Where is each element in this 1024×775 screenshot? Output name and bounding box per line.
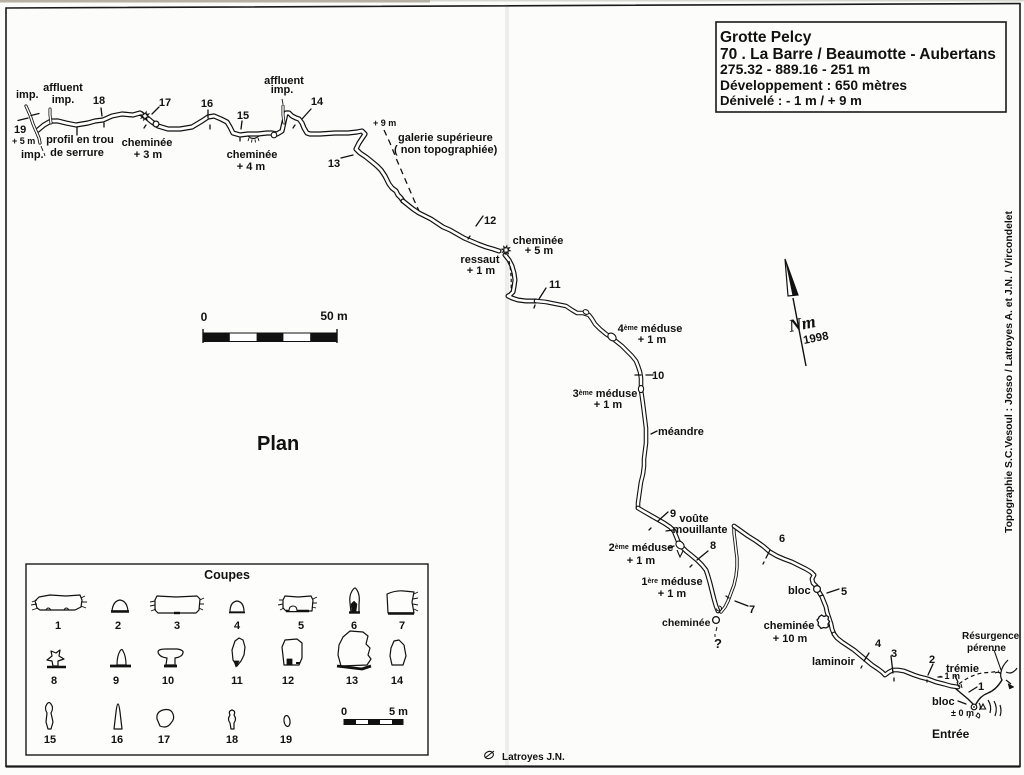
svg-text:cheminée: cheminée (122, 137, 173, 149)
svg-text:14: 14 (391, 675, 404, 687)
svg-text:4: 4 (234, 620, 241, 632)
svg-text:cheminée: cheminée (227, 149, 278, 161)
svg-text:19: 19 (14, 124, 26, 136)
svg-text:12: 12 (484, 215, 496, 227)
svg-text:Entrée: Entrée (932, 727, 970, 741)
svg-text:13: 13 (328, 158, 340, 170)
svg-text:18: 18 (226, 734, 238, 746)
svg-text:+ 1 m: + 1 m (638, 334, 667, 346)
svg-text:17: 17 (158, 734, 170, 746)
svg-text:+ 10 m: + 10 m (773, 633, 808, 645)
svg-text:bloc: bloc (788, 585, 811, 597)
svg-text:3: 3 (891, 648, 897, 660)
svg-text:1: 1 (55, 620, 61, 632)
svg-text:cheminée: cheminée (662, 617, 711, 629)
svg-text:Grotte Pelcy: Grotte Pelcy (720, 29, 812, 46)
svg-text:Latroyes J.N.: Latroyes J.N. (502, 752, 565, 763)
svg-text:2: 2 (929, 654, 935, 666)
svg-text:Développement : 650 mètres: Développement : 650 mètres (720, 78, 907, 93)
svg-text:imp.: imp. (52, 94, 75, 106)
svg-text:Dénivelé : - 1 m / + 9 m: Dénivelé : - 1 m / + 9 m (720, 93, 862, 108)
svg-text:18: 18 (93, 95, 105, 107)
svg-text:+ 9 m: + 9 m (373, 118, 396, 128)
svg-text:275.32 - 889.16 - 251 m: 275.32 - 889.16 - 251 m (720, 61, 870, 77)
svg-text:7: 7 (749, 604, 755, 616)
svg-text:10: 10 (652, 370, 664, 382)
svg-text:imp.: imp. (21, 149, 44, 161)
svg-text:+ 1 m: + 1 m (658, 588, 687, 600)
svg-text:0: 0 (201, 310, 208, 324)
svg-text:+ 1 m: + 1 m (594, 399, 623, 411)
svg-text:mouillante: mouillante (672, 524, 727, 536)
svg-text:5: 5 (298, 620, 304, 632)
svg-text:imp.: imp. (16, 89, 39, 101)
svg-text:Résurgence: Résurgence (962, 631, 1020, 642)
svg-text:+ 5 m: + 5 m (525, 245, 554, 257)
svg-text:50 m: 50 m (320, 309, 347, 323)
svg-text:( non topographiée): ( non topographiée) (394, 144, 498, 156)
svg-text:15: 15 (237, 110, 249, 122)
svg-text:8: 8 (51, 675, 57, 687)
svg-text:profil en trou: profil en trou (46, 134, 114, 146)
svg-text:7: 7 (399, 620, 405, 632)
svg-text:16: 16 (201, 98, 213, 110)
svg-text:4: 4 (875, 638, 882, 650)
svg-text:imp.: imp. (271, 84, 294, 96)
svg-text:+ 1 m: + 1 m (627, 555, 656, 567)
svg-text:5: 5 (841, 586, 847, 598)
svg-text:laminoir: laminoir (812, 656, 856, 668)
svg-text:8: 8 (710, 540, 716, 552)
svg-text:9: 9 (113, 675, 119, 687)
svg-text:6: 6 (779, 533, 785, 545)
svg-text:+ 3 m: + 3 m (134, 149, 163, 161)
svg-text:17: 17 (159, 97, 171, 109)
svg-text:19: 19 (280, 734, 292, 746)
svg-text:- 1 m: - 1 m (939, 671, 960, 681)
svg-text:+ 4 m: + 4 m (237, 161, 266, 173)
svg-text:Coupes: Coupes (204, 568, 250, 582)
svg-text:3: 3 (174, 620, 180, 632)
svg-text:6: 6 (351, 620, 357, 632)
svg-text:?: ? (714, 636, 722, 651)
svg-text:12: 12 (282, 675, 294, 687)
svg-text:de serrure: de serrure (50, 147, 104, 159)
svg-text:pérenne: pérenne (967, 643, 1006, 654)
svg-text:10: 10 (162, 675, 174, 687)
svg-text:2: 2 (115, 620, 121, 632)
svg-text:13: 13 (346, 675, 358, 687)
svg-text:Plan: Plan (257, 433, 299, 455)
svg-text:15: 15 (44, 734, 56, 746)
svg-text:0: 0 (341, 706, 347, 718)
svg-text:11: 11 (231, 675, 243, 687)
svg-text:affluent: affluent (43, 82, 83, 94)
svg-text:+ 1 m: + 1 m (467, 265, 496, 277)
svg-text:9: 9 (670, 508, 676, 520)
svg-text:Topographie S.C.Vesoul : Josso: Topographie S.C.Vesoul : Josso / Latroye… (1004, 210, 1015, 533)
svg-text:5 m: 5 m (389, 706, 408, 718)
svg-text:+ 5 m: + 5 m (12, 136, 35, 146)
svg-text:11: 11 (549, 279, 561, 291)
svg-text:± 0 m: ± 0 m (951, 708, 974, 718)
svg-text:1: 1 (978, 681, 984, 693)
svg-text:méandre: méandre (658, 426, 704, 438)
svg-text:bloc: bloc (932, 696, 955, 708)
svg-text:cheminée: cheminée (764, 620, 815, 632)
svg-text:16: 16 (111, 734, 123, 746)
svg-text:galerie supérieure: galerie supérieure (398, 132, 493, 144)
svg-text:14: 14 (311, 96, 324, 108)
